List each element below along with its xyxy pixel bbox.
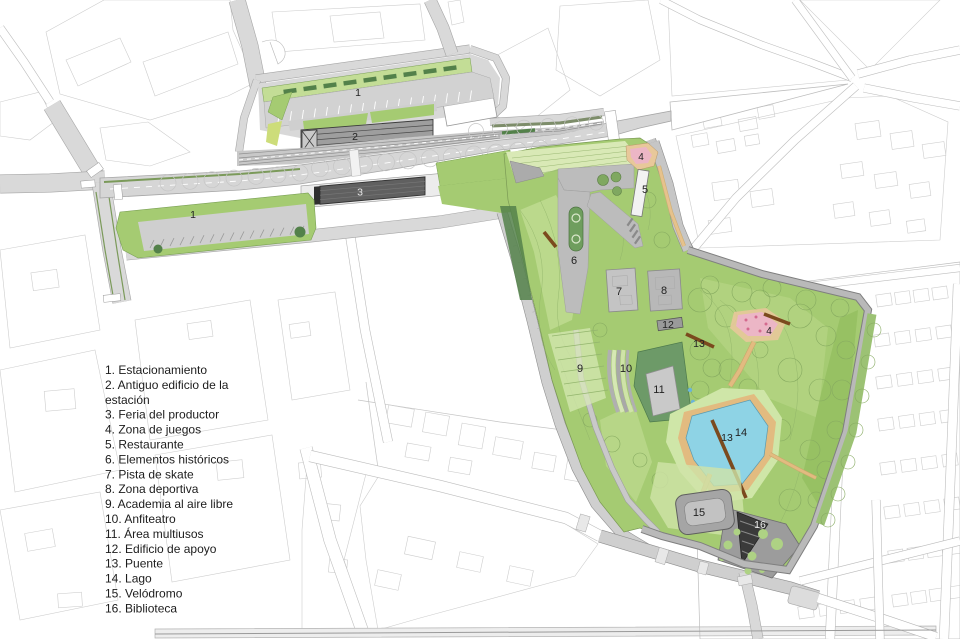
svg-text:7: 7	[616, 286, 622, 298]
svg-text:4: 4	[766, 326, 772, 337]
svg-text:9. Academia al aire libre: 9. Academia al aire libre	[105, 497, 233, 511]
svg-text:11: 11	[653, 384, 664, 396]
svg-text:8. Zona deportiva: 8. Zona deportiva	[105, 482, 199, 496]
svg-text:7. Pista de skate: 7. Pista de skate	[105, 467, 194, 481]
svg-text:3: 3	[357, 187, 363, 199]
svg-text:1. Estacionamiento: 1. Estacionamiento	[105, 363, 207, 377]
svg-text:12: 12	[662, 319, 674, 331]
svg-text:9: 9	[577, 363, 583, 375]
svg-text:8: 8	[661, 285, 667, 297]
svg-text:14: 14	[735, 427, 747, 439]
svg-text:12. Edificio de apoyo: 12. Edificio de apoyo	[105, 542, 217, 556]
svg-text:estación: estación	[105, 393, 150, 407]
svg-text:2: 2	[352, 131, 358, 143]
svg-text:15: 15	[693, 507, 705, 519]
svg-text:4. Zona de juegos: 4. Zona de juegos	[105, 423, 201, 437]
svg-text:6: 6	[571, 255, 577, 267]
svg-text:1: 1	[355, 87, 361, 99]
svg-text:13: 13	[721, 432, 733, 444]
svg-text:5: 5	[642, 184, 648, 196]
svg-text:1: 1	[190, 209, 196, 221]
svg-text:14. Lago: 14. Lago	[105, 572, 152, 586]
svg-text:10: 10	[620, 363, 632, 375]
svg-text:15. Velódromo: 15. Velódromo	[105, 587, 183, 601]
svg-text:5. Restaurante: 5. Restaurante	[105, 438, 184, 452]
svg-text:10. Anfiteatro: 10. Anfiteatro	[105, 512, 176, 526]
svg-text:2. Antiguo edificio de la: 2. Antiguo edificio de la	[105, 378, 229, 392]
svg-text:16. Biblioteca: 16. Biblioteca	[105, 601, 177, 615]
svg-text:13: 13	[693, 338, 705, 350]
svg-text:11. Área multiusos: 11. Área multiusos	[105, 526, 204, 541]
svg-text:3. Feria del productor: 3. Feria del productor	[105, 408, 219, 422]
svg-text:13. Puente: 13. Puente	[105, 557, 163, 571]
svg-text:4: 4	[638, 152, 644, 163]
svg-text:6. Elementos históricos: 6. Elementos históricos	[105, 452, 229, 466]
